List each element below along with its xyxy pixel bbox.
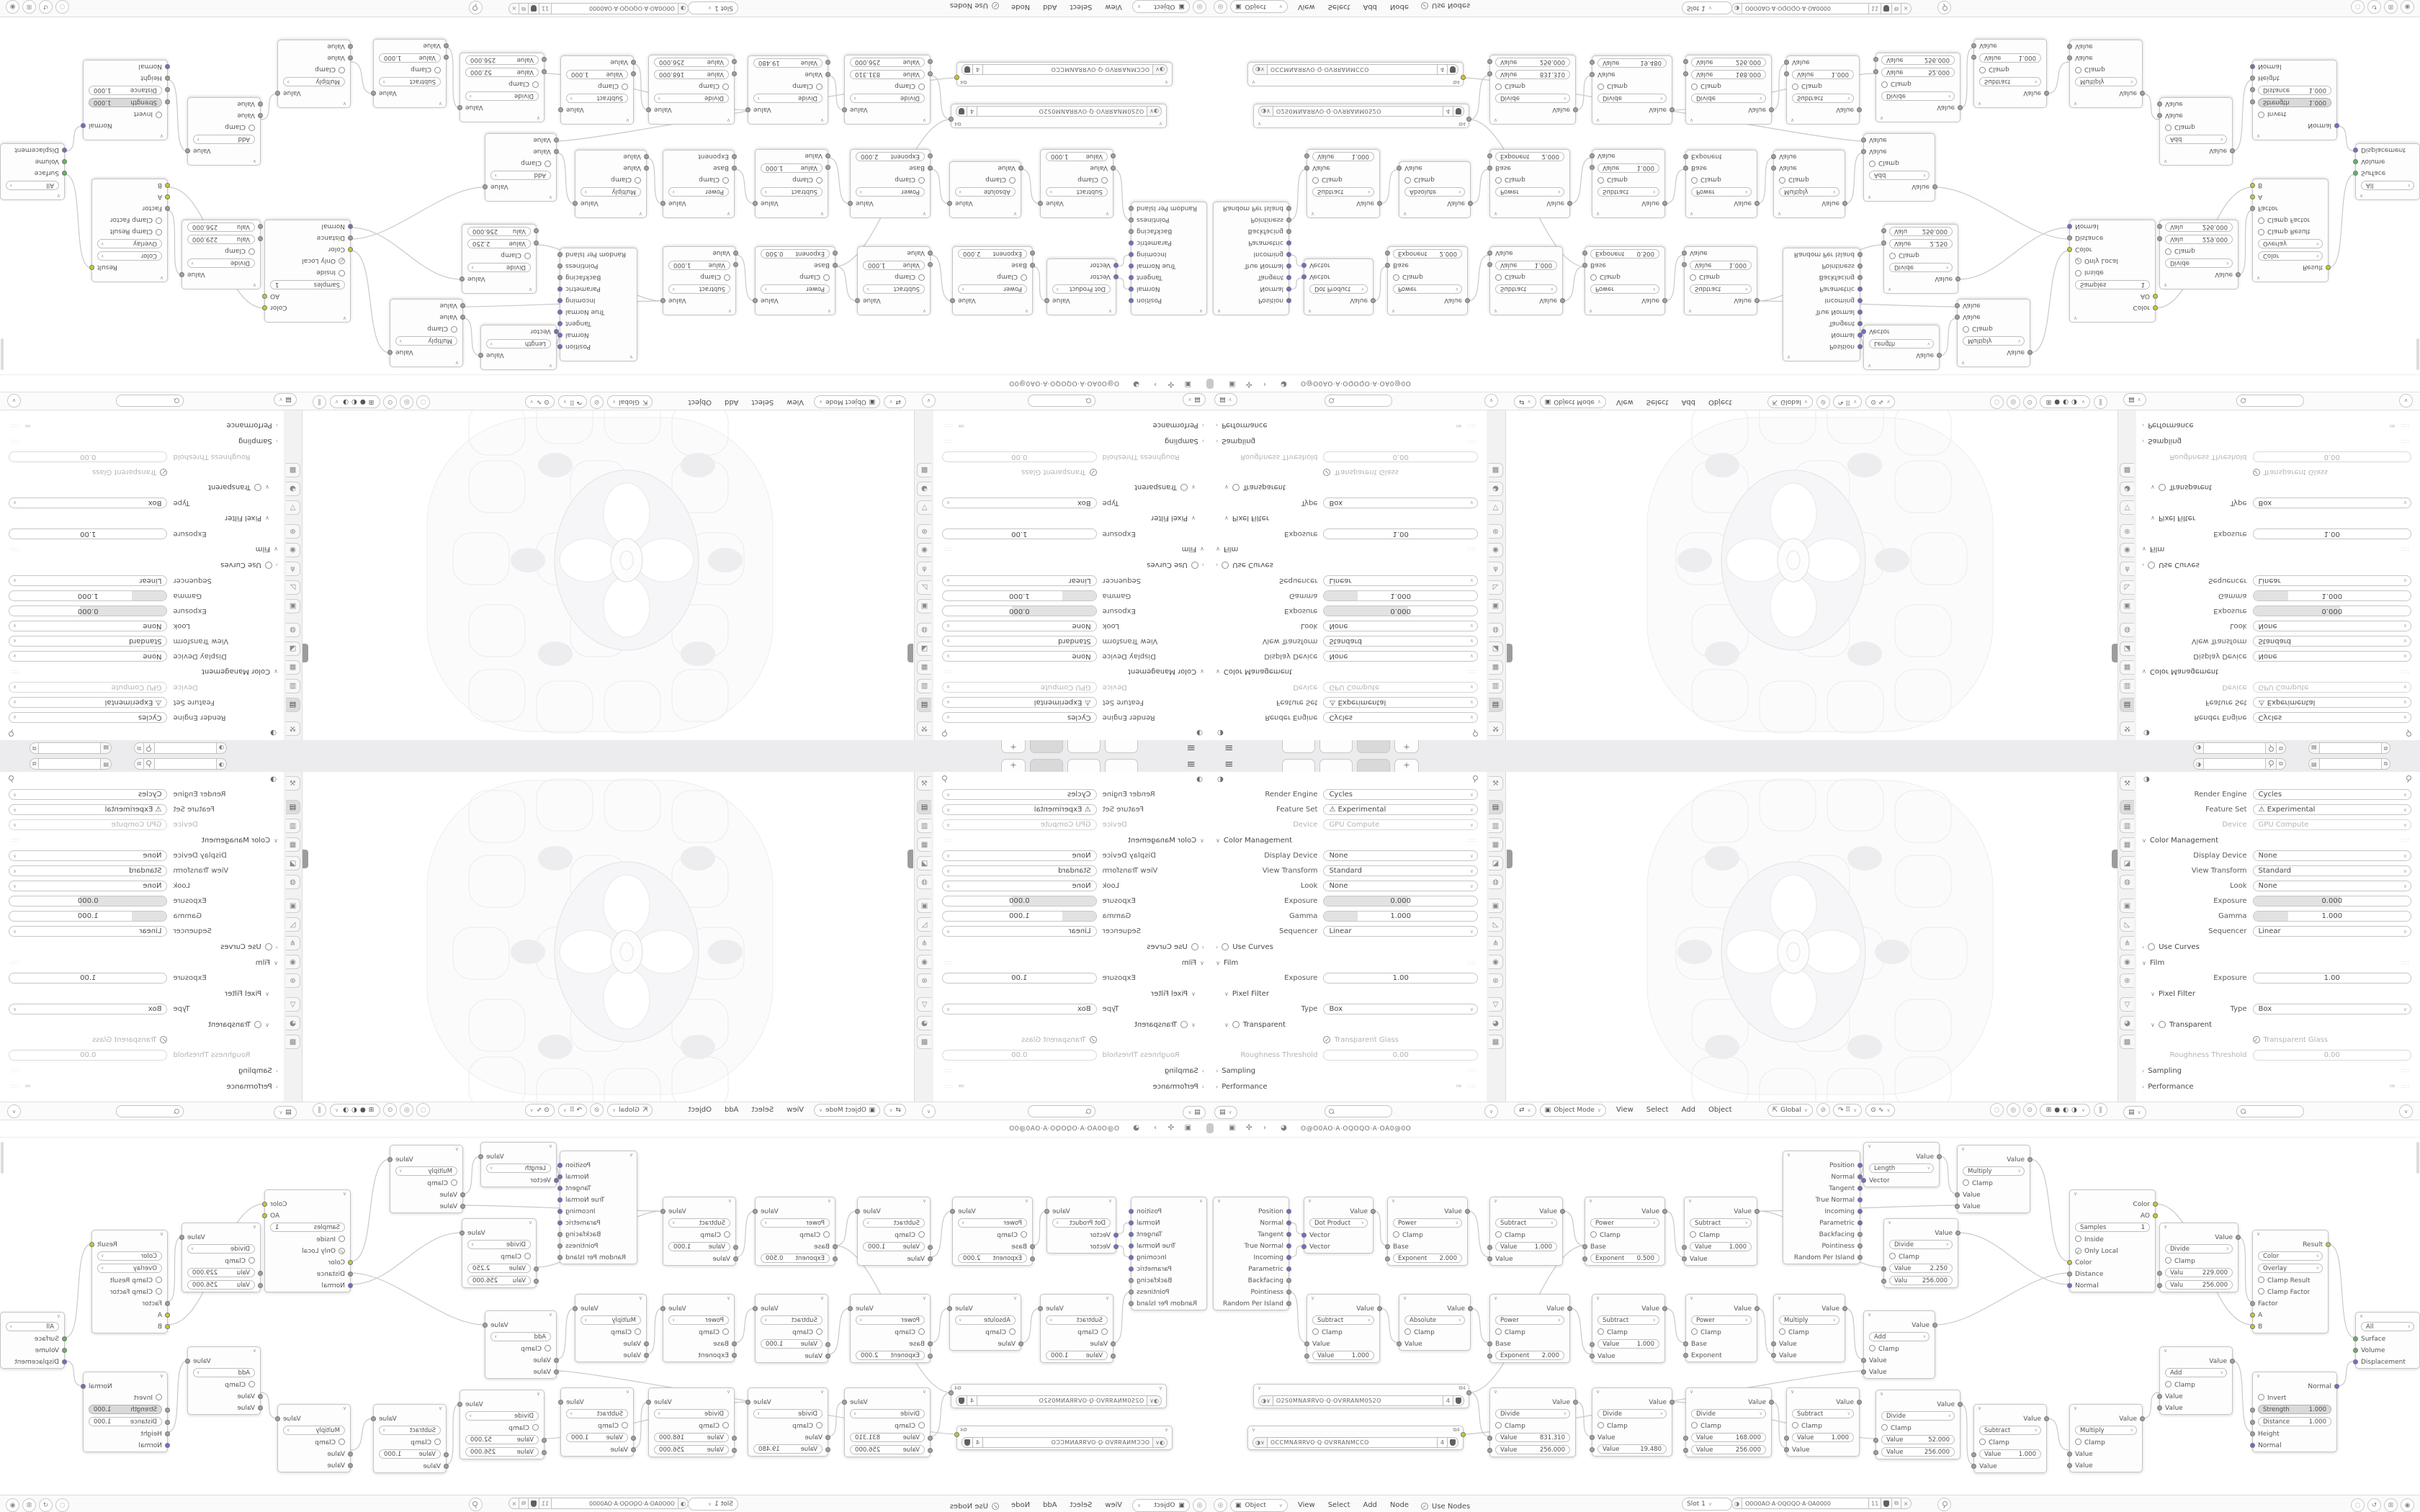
output-socket[interactable]: [1857, 298, 1863, 303]
number-field[interactable]: Exponent2.000: [1495, 1351, 1564, 1360]
properties-tab-particles[interactable]: ⋔: [286, 562, 300, 576]
node-header[interactable]: ∨: [278, 1405, 350, 1413]
input-socket[interactable]: [348, 224, 353, 229]
shading-wireframe-icon[interactable]: ⊞: [2046, 399, 2052, 406]
properties-tab-modifiers[interactable]: ◺: [1489, 580, 1503, 595]
prop-dropdown[interactable]: None∨: [942, 621, 1097, 631]
pin-icon[interactable]: [1472, 729, 1478, 737]
input-socket[interactable]: [444, 55, 449, 60]
node-math-power[interactable]: ∨ValuePower∨ClampBaseExponent0.500: [755, 1197, 835, 1266]
input-socket[interactable]: [1861, 1369, 1866, 1374]
node-math-subtract[interactable]: ∨ValueSubtract∨ClampValue1.000Value: [1973, 39, 2047, 108]
input-socket[interactable]: [1590, 1342, 1595, 1347]
prop-value-field[interactable]: 1.00: [9, 973, 167, 984]
node-material-id[interactable]: ∨⧉4◑∨OCCMNAЯRVO·Q·OVЯRANMCCO4: [956, 1426, 1173, 1450]
input-socket[interactable]: [928, 166, 933, 171]
input-socket[interactable]: [2250, 99, 2255, 104]
node-menu-select[interactable]: Select: [1328, 1501, 1350, 1509]
input-socket[interactable]: [1487, 59, 1492, 64]
move-icon[interactable]: ✣: [1168, 380, 1174, 388]
output-socket[interactable]: [1937, 353, 1942, 358]
operation-dropdown[interactable]: Add∨: [193, 135, 255, 144]
toggle-section-transparent[interactable]: ∨Transparent: [0, 1017, 284, 1032]
input-socket[interactable]: [825, 1435, 830, 1440]
properties-tab-modifiers[interactable]: ◺: [1489, 917, 1503, 932]
node-header[interactable]: ∨: [460, 1390, 544, 1399]
node-header[interactable]: ∨: [1592, 1295, 1664, 1303]
prop-value-field[interactable]: 1.00: [1323, 528, 1478, 539]
input-socket[interactable]: [1784, 60, 1789, 65]
pin-icon[interactable]: [1937, 1, 1951, 14]
output-socket[interactable]: [557, 344, 563, 349]
input-socket[interactable]: [732, 1353, 737, 1358]
input-socket[interactable]: [1861, 1358, 1866, 1363]
output-socket[interactable]: [1286, 217, 1291, 222]
pin-icon[interactable]: [469, 1, 483, 14]
node-header[interactable]: ∨: [1131, 306, 1206, 315]
collapse-icon[interactable]: ∨: [2164, 282, 2167, 288]
output-socket[interactable]: [1857, 275, 1863, 280]
input-socket[interactable]: [928, 1341, 933, 1346]
collapse-icon[interactable]: ∨: [343, 1191, 346, 1197]
output-socket[interactable]: [1754, 298, 1760, 303]
id-selector[interactable]: ◑⧉: [134, 742, 227, 754]
properties-tab-world[interactable]: ◍: [1489, 875, 1503, 889]
node-header[interactable]: ∨: [1041, 209, 1113, 217]
node-header[interactable]: ∨: [1974, 1405, 2046, 1413]
editor-type-button[interactable]: ◎: [1193, 1498, 1206, 1512]
material-name-field[interactable]: O0O0AO·A·OQOQO·A·OA0000: [551, 3, 678, 14]
operation-dropdown[interactable]: Divide∨: [753, 94, 823, 103]
collapse-icon[interactable]: ∨: [1108, 1198, 1112, 1204]
check-wrap[interactable]: ✓Transparent Glass: [1323, 468, 1398, 476]
prop-dropdown[interactable]: Standard∨: [1323, 865, 1478, 876]
slot-dropdown[interactable]: Slot 1∨: [1682, 1498, 1732, 1511]
workspace-tab[interactable]: [1105, 740, 1138, 753]
checkbox[interactable]: [918, 1328, 925, 1335]
pin-icon[interactable]: [9, 775, 14, 783]
number-field[interactable]: Valu256.000: [1889, 1276, 1953, 1285]
shading-material-icon[interactable]: ◐: [2063, 399, 2069, 406]
properties-tab-modifiers[interactable]: ◺: [917, 917, 931, 932]
pin-icon[interactable]: [2266, 758, 2277, 770]
number-field[interactable]: Exponent0.500: [1590, 249, 1659, 258]
section-header-color-management[interactable]: ∨Color Management∷∷: [2136, 664, 2420, 680]
input-socket[interactable]: [1861, 329, 1866, 334]
output-socket[interactable]: [185, 148, 190, 153]
shader-type-dropdown[interactable]: ▣Object∨: [1230, 1, 1288, 14]
checkbox[interactable]: [918, 177, 925, 184]
input-socket[interactable]: [1683, 166, 1688, 171]
shading-solid-icon[interactable]: ●: [360, 399, 366, 406]
add-workspace-button[interactable]: +: [1394, 759, 1419, 772]
search-input[interactable]: [2236, 395, 2304, 407]
collapse-icon[interactable]: ∨: [1787, 354, 1791, 360]
checkbox-checked[interactable]: ✓: [2075, 1248, 2081, 1254]
check-wrap[interactable]: ✓Transparent Glass: [92, 468, 167, 476]
prop-dropdown[interactable]: ⚠ Experimental∨: [2253, 804, 2411, 815]
node-header[interactable]: ∨: [1490, 1197, 1562, 1206]
node-header[interactable]: ∨: [649, 1388, 734, 1397]
operation-dropdown[interactable]: Subtract∨: [1312, 1315, 1374, 1325]
output-socket[interactable]: [1129, 1209, 1134, 1214]
node-math-multiply[interactable]: ∨ValueMultiply∨ClampValueValue: [575, 1294, 647, 1362]
output-socket[interactable]: [1857, 287, 1863, 292]
operation-dropdown[interactable]: Divide∨: [1495, 94, 1570, 103]
id-selector[interactable]: ▤⧉: [30, 742, 112, 754]
properties-tab-output[interactable]: ▥: [1489, 679, 1503, 693]
output-socket[interactable]: [460, 1230, 465, 1236]
operation-dropdown[interactable]: Power∨: [761, 1218, 830, 1228]
node-header[interactable]: ∨: [953, 1197, 1032, 1206]
output-socket[interactable]: [1286, 206, 1291, 211]
number-field[interactable]: Valu229.000: [187, 1268, 255, 1277]
input-socket[interactable]: [928, 251, 933, 256]
collapse-icon[interactable]: ∨: [923, 211, 926, 217]
section-header-pixel-filter[interactable]: ∨Pixel Filter: [1210, 986, 1487, 1002]
input-socket[interactable]: [1971, 55, 1976, 60]
section-header-sampling[interactable]: ›Sampling∷∷: [1210, 433, 1487, 449]
prop-value-field[interactable]: 1.000: [9, 590, 167, 601]
node-header[interactable]: ∨: [1490, 1388, 1575, 1397]
node-header[interactable]: ∨: [182, 280, 260, 289]
node-header[interactable]: ∨: [2160, 156, 2232, 165]
node-math-subtract[interactable]: ∨ValueSubtract∨ClampValue1.000Value: [857, 1197, 931, 1266]
output-socket[interactable]: [1286, 229, 1291, 234]
node-math-power[interactable]: ∨ValuePower∨ClampBaseExponent: [663, 150, 735, 218]
properties-tab-tool[interactable]: ⚒: [1489, 721, 1503, 736]
number-field[interactable]: Samples1: [270, 1223, 345, 1232]
input-socket[interactable]: [1113, 263, 1119, 268]
output-socket[interactable]: [1129, 275, 1134, 280]
output-socket[interactable]: [1567, 1306, 1572, 1311]
editor-type-button[interactable]: ⇄∨: [884, 396, 906, 409]
node-math-divide[interactable]: ∨ValueDivide∨ClampValue168.000Value256.0…: [648, 55, 735, 125]
output-socket[interactable]: [89, 1242, 94, 1247]
snap-grid-button[interactable]: ⊞: [2384, 0, 2398, 14]
id-selector[interactable]: ◑⧉: [2193, 742, 2286, 754]
operation-dropdown[interactable]: Multiply∨: [2075, 77, 2137, 86]
input-socket[interactable]: [2067, 224, 2072, 229]
output-socket[interactable]: [1857, 1220, 1863, 1225]
number-field[interactable]: Value1.000: [761, 163, 823, 173]
collapse-icon[interactable]: ∨: [1494, 308, 1497, 314]
operation-dropdown[interactable]: Absolute∨: [955, 187, 1016, 197]
collapse-icon[interactable]: ∨: [629, 1152, 633, 1158]
checkbox[interactable]: [156, 112, 162, 118]
node-bump[interactable]: ∨NormalInvertStrength1.000Distance1.000H…: [83, 60, 168, 140]
properties-tab-particles[interactable]: ⋔: [286, 936, 300, 950]
properties-tab-particles[interactable]: ⋔: [1489, 562, 1503, 576]
input-socket[interactable]: [1682, 1256, 1687, 1261]
collapse-icon[interactable]: ∨: [820, 117, 824, 123]
node-header[interactable]: ∨: [575, 1295, 646, 1303]
viewport-menu-object[interactable]: Object: [688, 1106, 712, 1114]
move-icon[interactable]: ✣: [1168, 1124, 1174, 1132]
proportional-editing-dropdown[interactable]: ⊙∿∨: [525, 396, 555, 409]
output-socket[interactable]: [753, 1209, 758, 1214]
node-math-add[interactable]: ∨ValueAdd∨ClampValueValue: [1863, 1310, 1935, 1379]
viewport-menu-view[interactable]: View: [1616, 398, 1633, 406]
section-header-film[interactable]: ∨Film∷∷: [933, 541, 1210, 557]
checkbox[interactable]: [1312, 177, 1319, 184]
input-socket[interactable]: [2067, 44, 2072, 49]
prop-dropdown[interactable]: Box∨: [2253, 498, 2411, 508]
checkbox-checked[interactable]: ✓: [160, 469, 167, 476]
input-socket[interactable]: [2157, 113, 2162, 118]
section-header-color-management[interactable]: ∨Color Management∷∷: [0, 664, 284, 680]
operation-dropdown[interactable]: Divide∨: [187, 258, 255, 268]
section-header-pixel-filter[interactable]: ∨Pixel Filter: [933, 510, 1210, 526]
collapse-icon[interactable]: ∨: [1494, 211, 1497, 217]
overlay-dropdown[interactable]: ◉: [6, 0, 19, 14]
properties-tab-object[interactable]: ▣: [2120, 599, 2134, 613]
input-socket[interactable]: [165, 1431, 170, 1436]
collapse-icon[interactable]: ∨: [1217, 1198, 1221, 1204]
output-socket[interactable]: [1286, 1220, 1291, 1225]
output-socket[interactable]: [1670, 1400, 1675, 1405]
node-math-add[interactable]: ∨ValueAdd∨ClampValueValue: [187, 1346, 261, 1415]
section-header-color-management[interactable]: ∨Color Management∷∷: [933, 832, 1210, 848]
checkbox[interactable]: [816, 84, 823, 90]
number-field[interactable]: Value168.000: [1691, 70, 1766, 79]
output-socket[interactable]: [954, 1432, 959, 1437]
output-socket[interactable]: [2140, 1416, 2145, 1421]
output-socket[interactable]: [557, 1186, 563, 1191]
checkbox[interactable]: [2075, 67, 2081, 73]
node-vector-math-length[interactable]: ∨ValueLength∨Vector: [480, 1142, 557, 1187]
node-header[interactable]: ∨: [663, 306, 735, 315]
collapse-icon[interactable]: ∨: [529, 287, 532, 292]
operation-dropdown[interactable]: Multiply∨: [581, 1315, 641, 1325]
operation-dropdown[interactable]: Divide∨: [187, 1244, 255, 1254]
prop-dropdown[interactable]: GPU Compute∨: [9, 682, 167, 693]
output-socket[interactable]: [557, 275, 563, 280]
output-socket[interactable]: [1857, 344, 1863, 349]
input-socket[interactable]: [1873, 1450, 1878, 1455]
checkbox[interactable]: [524, 253, 531, 259]
prop-value-field[interactable]: 1.000: [1323, 590, 1478, 601]
shield-icon[interactable]: [956, 107, 967, 117]
output-socket[interactable]: [1857, 1400, 1862, 1405]
node-math-subtract[interactable]: ∨ValueSubtract∨ClampValue1.000Value: [1489, 1197, 1563, 1266]
node-ambient-occlusion[interactable]: ∨ColorAOSamples1Inside✓Only LocalColorDi…: [2069, 220, 2156, 323]
prop-value-field[interactable]: 0.000: [942, 896, 1097, 906]
output-socket[interactable]: [275, 1416, 280, 1421]
prop-dropdown[interactable]: Standard∨: [9, 636, 167, 647]
input-socket[interactable]: [1582, 251, 1587, 256]
section-header-performance[interactable]: ›Performance≔∷∷: [2136, 1079, 2420, 1094]
checkbox[interactable]: [823, 274, 830, 281]
input-socket[interactable]: [1881, 240, 1886, 246]
collapse-icon[interactable]: ∨: [2074, 101, 2077, 107]
input-socket[interactable]: [444, 1464, 449, 1469]
output-socket[interactable]: [842, 1400, 847, 1405]
input-socket[interactable]: [554, 1178, 559, 1183]
node-header[interactable]: ∨: [1783, 1151, 1860, 1160]
checkbox[interactable]: [2165, 1381, 2172, 1387]
number-field[interactable]: Strength1.000: [89, 98, 162, 107]
material-name-field[interactable]: O0O0AO·A·OQOQO·A·OA0000: [1742, 3, 1869, 14]
output-socket[interactable]: [1371, 1209, 1376, 1214]
browse-material-icon[interactable]: ◑∨: [1252, 1437, 1268, 1448]
input-socket[interactable]: [1301, 274, 1307, 279]
input-socket[interactable]: [2250, 1408, 2255, 1413]
collapse-icon[interactable]: ∨: [549, 1312, 552, 1318]
search-input[interactable]: [1028, 1105, 1095, 1117]
output-socket[interactable]: [457, 105, 462, 110]
proportional-editing-dropdown[interactable]: ⊙∿∨: [1865, 396, 1895, 409]
output-socket[interactable]: [1573, 1400, 1578, 1405]
prop-value-field[interactable]: 1.000: [942, 911, 1097, 922]
collapse-icon[interactable]: ∨: [1888, 287, 1891, 292]
prop-dropdown[interactable]: Linear∨: [9, 926, 167, 937]
operation-dropdown[interactable]: Divide∨: [654, 94, 729, 103]
prop-value-field[interactable]: 0.000: [1323, 606, 1478, 616]
overlay-dropdown[interactable]: ◉: [2401, 0, 2414, 14]
node-header[interactable]: ∨: [485, 1311, 556, 1320]
node-math-multiply[interactable]: ∨ValueMultiply∨ClampValueValue: [1773, 1294, 1845, 1362]
checkbox[interactable]: [1881, 81, 1888, 88]
section-header-sampling[interactable]: ›Sampling∷∷: [2136, 433, 2420, 449]
shading-solid-icon[interactable]: ●: [360, 1107, 366, 1114]
operation-dropdown[interactable]: Divide∨: [1691, 1409, 1766, 1418]
node-geometry[interactable]: ∨PositionNormalTangentTrue NormalIncomin…: [1131, 1197, 1207, 1310]
node-header[interactable]: ∨: [851, 1295, 930, 1303]
operation-dropdown[interactable]: Divide∨: [850, 94, 925, 103]
input-socket[interactable]: [1683, 1436, 1688, 1441]
input-socket[interactable]: [2157, 1405, 2162, 1410]
chevron-right-icon[interactable]: ›: [1263, 1124, 1266, 1132]
operation-dropdown[interactable]: All∨: [2361, 1322, 2414, 1331]
input-socket[interactable]: [928, 262, 933, 267]
shading-mode-group[interactable]: ⊞●◐◑∨: [2040, 1104, 2090, 1117]
checkbox[interactable]: [2159, 484, 2166, 491]
properties-tab-output[interactable]: ▥: [2120, 819, 2134, 833]
xray-button[interactable]: ⊙: [2023, 395, 2037, 409]
checkbox[interactable]: [248, 125, 255, 131]
operation-dropdown[interactable]: Add∨: [193, 1368, 255, 1377]
input-socket[interactable]: [258, 236, 263, 241]
operation-dropdown[interactable]: Power∨: [1590, 284, 1659, 294]
prop-dropdown[interactable]: Box∨: [1323, 1004, 1478, 1014]
checkbox[interactable]: [622, 1422, 628, 1428]
shader-type-dropdown[interactable]: ▣Object∨: [1230, 1499, 1288, 1512]
section-header-film[interactable]: ∨Film∷∷: [933, 955, 1210, 971]
operation-dropdown[interactable]: Subtract∨: [1979, 1426, 2041, 1435]
ghost-button[interactable]: ◌: [55, 0, 69, 14]
input-socket[interactable]: [348, 1272, 353, 1277]
operation-dropdown[interactable]: Add∨: [490, 1332, 551, 1341]
checkbox-checked[interactable]: ✓: [2253, 1036, 2260, 1043]
checkbox[interactable]: [1597, 84, 1604, 90]
prop-dropdown[interactable]: Linear∨: [9, 575, 167, 586]
input-socket[interactable]: [460, 1204, 465, 1209]
material-id-row[interactable]: ◑∨O2S0MNAЯRVO·Q·OVЯRANM0S2O4: [951, 1393, 1166, 1408]
ghost-button[interactable]: ◌: [55, 1498, 69, 1512]
toggle-section-transparent[interactable]: ∨Transparent: [933, 480, 1210, 495]
properties-tab-output[interactable]: ▥: [286, 819, 300, 833]
input-socket[interactable]: [554, 138, 559, 143]
checkbox[interactable]: [1881, 1424, 1888, 1431]
input-socket[interactable]: [165, 183, 170, 188]
input-socket[interactable]: [1971, 1452, 1976, 1457]
operation-dropdown[interactable]: Divide∨: [1691, 94, 1766, 103]
node-header[interactable]: ∨: [1686, 115, 1771, 124]
id-selector[interactable]: ▤⧉: [30, 758, 112, 770]
input-socket[interactable]: [1301, 1244, 1307, 1249]
node-math-divide[interactable]: ∨ValueDivide∨ClampValue52.000Value256.00…: [460, 53, 544, 122]
node-header[interactable]: ∨: [1388, 1197, 1467, 1206]
collapse-icon[interactable]: ∨: [343, 315, 346, 321]
operation-dropdown[interactable]: Subtract∨: [1690, 1218, 1752, 1228]
output-socket[interactable]: [262, 1202, 267, 1207]
input-socket[interactable]: [1304, 1354, 1309, 1359]
prop-dropdown[interactable]: Cycles∨: [2253, 789, 2411, 800]
input-socket[interactable]: [733, 1245, 738, 1250]
number-field[interactable]: Value1.000: [668, 261, 730, 270]
checkbox-checked[interactable]: ✓: [1323, 469, 1330, 476]
properties-tab-output[interactable]: ▥: [917, 819, 931, 833]
input-socket[interactable]: [165, 1443, 170, 1448]
collapse-icon[interactable]: ∨: [2257, 1231, 2260, 1237]
browse-material-icon[interactable]: ◑: [678, 1498, 689, 1509]
checkbox[interactable]: [265, 943, 272, 950]
checkbox[interactable]: [918, 84, 925, 90]
checkbox[interactable]: [156, 217, 162, 224]
editor-type-button[interactable]: ▤∨: [1183, 394, 1206, 407]
refresh-icon[interactable]: ↺: [2367, 0, 2381, 14]
input-socket[interactable]: [258, 224, 263, 229]
node-material-id[interactable]: ∨⧉4◑∨OCCMNAЯRVO·Q·OVЯRANMCCO4: [1247, 1426, 1464, 1450]
input-socket[interactable]: [1385, 263, 1390, 268]
operation-dropdown[interactable]: Divide∨: [753, 1409, 823, 1418]
gizmo-button[interactable]: ◌: [1990, 1103, 2004, 1117]
input-socket[interactable]: [1771, 154, 1776, 159]
input-socket[interactable]: [928, 59, 933, 64]
input-socket[interactable]: [2250, 76, 2255, 81]
id-selector[interactable]: ▤⧉: [2308, 742, 2390, 754]
snap-grid-button[interactable]: ⊞: [22, 0, 36, 14]
operation-dropdown[interactable]: Subtract∨: [1495, 1218, 1557, 1228]
node-vector-math-length[interactable]: ∨ValueLength∨Vector: [1863, 325, 1940, 370]
input-socket[interactable]: [2250, 1301, 2255, 1306]
output-socket[interactable]: [1560, 1209, 1565, 1214]
filter-dropdown-button[interactable]: ∨: [7, 1104, 21, 1118]
node-header[interactable]: ∨: [485, 192, 556, 201]
copy-icon[interactable]: ⧉: [519, 3, 528, 14]
output-socket[interactable]: [2230, 1359, 2235, 1364]
output-socket[interactable]: [1461, 1432, 1466, 1437]
input-socket[interactable]: [1111, 166, 1116, 171]
number-field[interactable]: Value1.000: [863, 261, 925, 270]
node-math-divide[interactable]: ∨ValueDivide∨ClampValueValue19.480: [748, 55, 828, 125]
input-socket[interactable]: [2250, 87, 2255, 92]
prop-dropdown[interactable]: Box∨: [1323, 498, 1478, 508]
operation-dropdown[interactable]: Subtract∨: [566, 94, 628, 103]
collapse-icon[interactable]: ∨: [1596, 1295, 1600, 1301]
collapse-icon[interactable]: ∨: [2359, 1313, 2363, 1319]
collapse-icon[interactable]: ∨: [1165, 1427, 1168, 1433]
node-vector-math-dot[interactable]: ∨ValueDot Product∨VectorVector: [1304, 258, 1373, 315]
number-field[interactable]: Value1.000: [668, 1242, 730, 1251]
collapse-icon[interactable]: ∨: [1778, 211, 1781, 217]
checkbox[interactable]: [1792, 84, 1798, 90]
xray-button[interactable]: ⊙: [383, 395, 397, 409]
checkbox[interactable]: [1691, 177, 1698, 184]
output-socket[interactable]: [2027, 350, 2033, 355]
properties-tab-view-layer[interactable]: ▦: [2120, 837, 2134, 852]
